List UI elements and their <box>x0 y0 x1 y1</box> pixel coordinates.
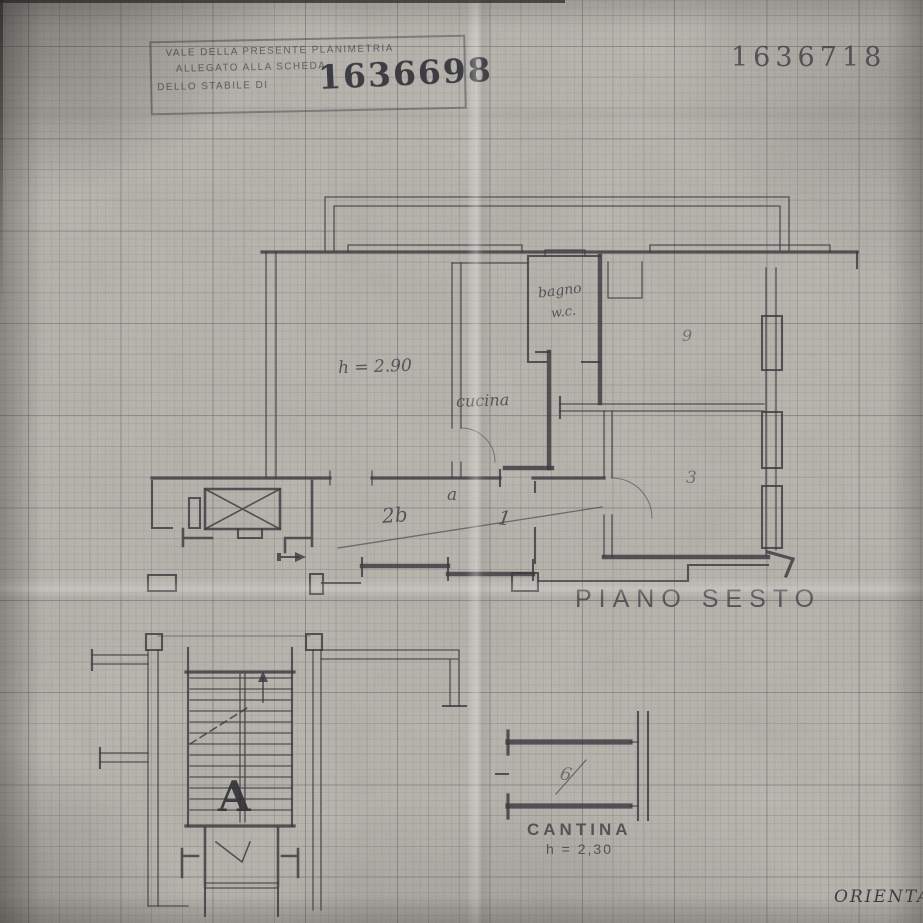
shaft-niche <box>608 262 642 298</box>
elevator-x-mark <box>205 489 280 529</box>
door-arc <box>612 478 652 518</box>
window <box>762 316 782 370</box>
stairwell-plan <box>92 634 466 916</box>
partition-wall <box>560 404 764 411</box>
cellar-pencil-mark <box>556 760 586 794</box>
floor-plan-drawing <box>0 0 923 923</box>
registry-stamp-box: VALE DELLA PRESENTE PLANIMETRIA ALLEGATO… <box>149 35 466 116</box>
paper-edge-top <box>0 0 565 3</box>
elevator <box>152 481 312 552</box>
stamp-line: DELLO STABILE DI <box>157 80 268 93</box>
bathroom-walls <box>528 256 600 362</box>
entry-arrow-icon <box>277 552 306 562</box>
lower-elevator-shaft <box>182 828 298 916</box>
window <box>762 486 782 548</box>
section-dashed-line <box>190 706 250 744</box>
paper-edge-left <box>0 0 3 320</box>
annotation-line <box>338 507 602 548</box>
left-wall <box>266 252 276 478</box>
apartment-plan <box>148 197 857 594</box>
scanned-floor-plan-page: VALE DELLA PRESENTE PLANIMETRIA ALLEGATO… <box>0 0 923 923</box>
stairs-up-arrow-icon <box>258 671 268 702</box>
window <box>762 412 782 468</box>
door-arc <box>461 428 495 462</box>
reference-number: 1636718 <box>731 42 886 73</box>
stair-treads <box>190 678 292 810</box>
stamp-number: 1636698 <box>317 50 493 97</box>
stamp-line: ALLEGATO ALLA SCHEDA <box>176 61 327 75</box>
cellar-plan <box>496 712 648 820</box>
balcony-outline <box>325 197 789 250</box>
